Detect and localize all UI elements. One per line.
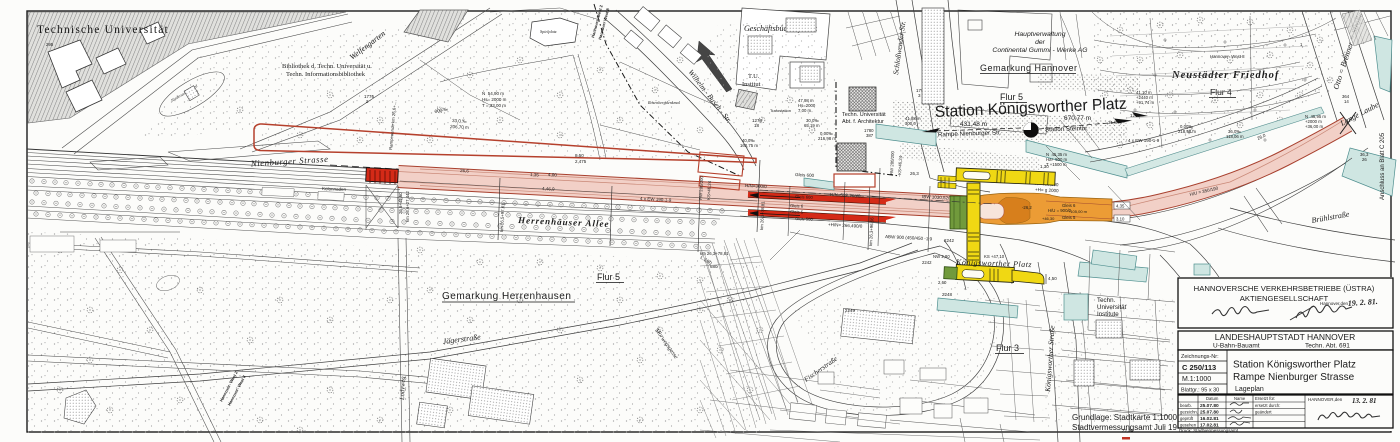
svg-text:26,3: 26,3 bbox=[910, 171, 919, 176]
svg-text:3,10: 3,10 bbox=[1116, 217, 1125, 222]
svg-text:14: 14 bbox=[1344, 99, 1349, 104]
svg-text:Hs= 2000 m: Hs= 2000 m bbox=[482, 97, 507, 102]
svg-text:25.07.80: 25.07.80 bbox=[1200, 410, 1219, 416]
svg-text:387: 387 bbox=[866, 133, 874, 138]
svg-text:T = 33,00 m: T = 33,00 m bbox=[482, 103, 506, 108]
svg-text:N 54,90 m: N 54,90 m bbox=[482, 91, 504, 96]
svg-text:Gleis 600: Gleis 600 bbox=[795, 194, 814, 200]
svg-text:Datum: Datum bbox=[1206, 396, 1219, 401]
svg-text:ersetzt durch:: ersetzt durch: bbox=[1255, 403, 1280, 408]
svg-text:Spielplatz: Spielplatz bbox=[540, 29, 557, 34]
svg-text:8,50: 8,50 bbox=[575, 153, 584, 158]
svg-text:431,48 m: 431,48 m bbox=[960, 121, 987, 128]
svg-text:218,98 m: 218,98 m bbox=[1178, 129, 1196, 134]
svg-text:Hauptverwaltung: Hauptverwaltung bbox=[1014, 31, 1065, 38]
svg-text:26,6: 26,6 bbox=[460, 168, 470, 173]
svg-text:Gleis 6: Gleis 6 bbox=[790, 203, 804, 209]
svg-text:4,50: 4,50 bbox=[1048, 276, 1057, 281]
svg-text:Rosenbergdenkmal: Rosenbergdenkmal bbox=[647, 100, 681, 105]
svg-text:Anschluss an Blatt C 205: Anschluss an Blatt C 205 bbox=[1380, 132, 1386, 200]
svg-text:2242: 2242 bbox=[944, 238, 955, 243]
svg-text:+105,00 m: +105,00 m bbox=[1068, 209, 1088, 214]
svg-text:Gleis 600: Gleis 600 bbox=[795, 172, 815, 178]
svg-text:AKTIENGESELLSCHAFT: AKTIENGESELLSCHAFT bbox=[1240, 294, 1329, 303]
svg-text:300,0: 300,0 bbox=[905, 121, 916, 126]
svg-text:Gleis 5: Gleis 5 bbox=[790, 209, 804, 215]
svg-text:Druck: Stadtvermessungsamt: Druck: Stadtvermessungsamt bbox=[1179, 428, 1239, 433]
svg-text:+36,00 m: +36,00 m bbox=[1305, 124, 1323, 129]
svg-text:NW 2,80: NW 2,80 bbox=[933, 254, 950, 259]
svg-text:206,70 m: 206,70 m bbox=[450, 124, 469, 130]
svg-text:Gleis 5: Gleis 5 bbox=[1062, 215, 1076, 220]
svg-text:118,06 m: 118,06 m bbox=[1226, 134, 1244, 139]
svg-text:13. 2. 81: 13. 2. 81 bbox=[1352, 397, 1377, 405]
svg-text:KS+46,24: KS+46,24 bbox=[897, 155, 903, 175]
svg-text:Stadtvermessungsamt Juli 1976: Stadtvermessungsamt Juli 1976 bbox=[1072, 423, 1186, 432]
svg-text:gesehen: gesehen bbox=[1180, 423, 1197, 428]
svg-text:HANNOVER,den: HANNOVER,den bbox=[1308, 397, 1343, 402]
svg-text:670,77 m: 670,77 m bbox=[1064, 115, 1091, 122]
svg-text:Universität: Universität bbox=[1097, 304, 1127, 311]
svg-text:Flur 5: Flur 5 bbox=[597, 272, 620, 282]
svg-text:26: 26 bbox=[1362, 157, 1367, 162]
svg-text:33,0 ‰: 33,0 ‰ bbox=[452, 118, 467, 124]
svg-text:gezeichn.: gezeichn. bbox=[1180, 410, 1198, 415]
svg-text:26,6+41,60: 26,6+41,60 bbox=[398, 192, 403, 214]
svg-text:2,475: 2,475 bbox=[575, 159, 587, 164]
svg-text:Neustädter Friedhof: Neustädter Friedhof bbox=[1171, 70, 1280, 81]
svg-text:2,60: 2,60 bbox=[938, 280, 947, 285]
svg-text:Gemarkung Herrenhausen: Gemarkung Herrenhausen bbox=[442, 291, 571, 302]
svg-text:Continental Gummi - Werke AG: Continental Gummi - Werke AG bbox=[992, 47, 1087, 54]
svg-text:2248: 2248 bbox=[942, 292, 953, 297]
svg-text:Bibliothek d. Techn. Universit: Bibliothek d. Techn. Universität u. bbox=[282, 63, 372, 70]
svg-text:Kolonnaden: Kolonnaden bbox=[322, 186, 347, 192]
svg-text:geändert: geändert bbox=[1255, 410, 1272, 415]
svg-text:der: der bbox=[1035, 39, 1046, 46]
svg-text:M.1:1000: M.1:1000 bbox=[1182, 376, 1211, 383]
svg-text:Gemarkung Hannover: Gemarkung Hannover bbox=[980, 63, 1078, 73]
svg-text:4,35: 4,35 bbox=[1116, 204, 1125, 209]
svg-text:T +1500 m: T +1500 m bbox=[1046, 162, 1067, 167]
svg-text:-26,2: -26,2 bbox=[1022, 205, 1032, 210]
svg-text:+46,30: +46,30 bbox=[1042, 216, 1055, 221]
svg-text:Lodyweg: Lodyweg bbox=[399, 376, 407, 401]
svg-text:LANDESHAUPTSTADT HANNOVER: LANDESHAUPTSTADT HANNOVER bbox=[1215, 332, 1355, 342]
svg-text:2249: 2249 bbox=[845, 308, 856, 313]
svg-text:Lageplan: Lageplan bbox=[1235, 386, 1264, 393]
svg-text:Blattgr.: 95 x 30: Blattgr.: 95 x 30 bbox=[1181, 388, 1219, 394]
svg-text:Hannover,den: Hannover,den bbox=[1320, 301, 1349, 306]
svg-text:Station Königsworther Platz: Station Königsworther Platz bbox=[1233, 360, 1356, 371]
svg-text:Institute: Institute bbox=[1097, 311, 1119, 318]
svg-text:Station Steintor: Station Steintor bbox=[1045, 125, 1088, 133]
svg-text:km 26,6+27,442: km 26,6+27,442 bbox=[405, 190, 410, 222]
svg-text:Rampe Nienburger Strasse: Rampe Nienburger Strasse bbox=[1233, 372, 1355, 383]
svg-text:Trafostation: Trafostation bbox=[770, 108, 791, 113]
svg-text:Abt. f. Architektur: Abt. f. Architektur bbox=[842, 119, 884, 125]
svg-text:HANNOVERSCHE VERKEHRSBETRIEBE: HANNOVERSCHE VERKEHRSBETRIEBE (ÜSTRA) bbox=[1194, 284, 1375, 293]
svg-text:16.02.81: 16.02.81 bbox=[1200, 416, 1219, 422]
svg-text:Zeichnungs-Nr:: Zeichnungs-Nr: bbox=[1181, 354, 1219, 360]
svg-text:geprüft: geprüft bbox=[1180, 416, 1194, 421]
svg-text:Techn.: Techn. bbox=[1097, 297, 1116, 304]
svg-text:Hannover- West 8: Hannover- West 8 bbox=[1210, 54, 1245, 59]
svg-text:Technische Universität: Technische Universität bbox=[37, 24, 169, 36]
svg-text:Name: Name bbox=[1234, 396, 1246, 401]
svg-text:U-Bahn-Bauamt: U-Bahn-Bauamt bbox=[1213, 343, 1260, 350]
svg-text:1,35: 1,35 bbox=[530, 172, 540, 177]
svg-text:C 250/113: C 250/113 bbox=[1182, 363, 1216, 372]
svg-text:Techn. Abt. 691: Techn. Abt. 691 bbox=[1305, 343, 1350, 350]
svg-text:Ersetzt für:: Ersetzt für: bbox=[1255, 396, 1275, 401]
svg-text:Grundlage: Stadtkarte 1:1000: Grundlage: Stadtkarte 1:1000 bbox=[1072, 413, 1178, 422]
svg-text:4,00: 4,00 bbox=[548, 172, 558, 177]
svg-text:KS+46,24: KS+46,24 bbox=[706, 180, 712, 200]
svg-text:Techn. Informationsbibliothek: Techn. Informationsbibliothek bbox=[286, 71, 366, 78]
svg-text:2242: 2242 bbox=[922, 260, 932, 265]
svg-text:25.07.80: 25.07.80 bbox=[1200, 403, 1219, 409]
svg-text:bearb.: bearb. bbox=[1180, 403, 1192, 408]
svg-text:Techn. Universität: Techn. Universität bbox=[842, 112, 886, 118]
svg-text:+91,74 m: +91,74 m bbox=[1136, 100, 1154, 105]
